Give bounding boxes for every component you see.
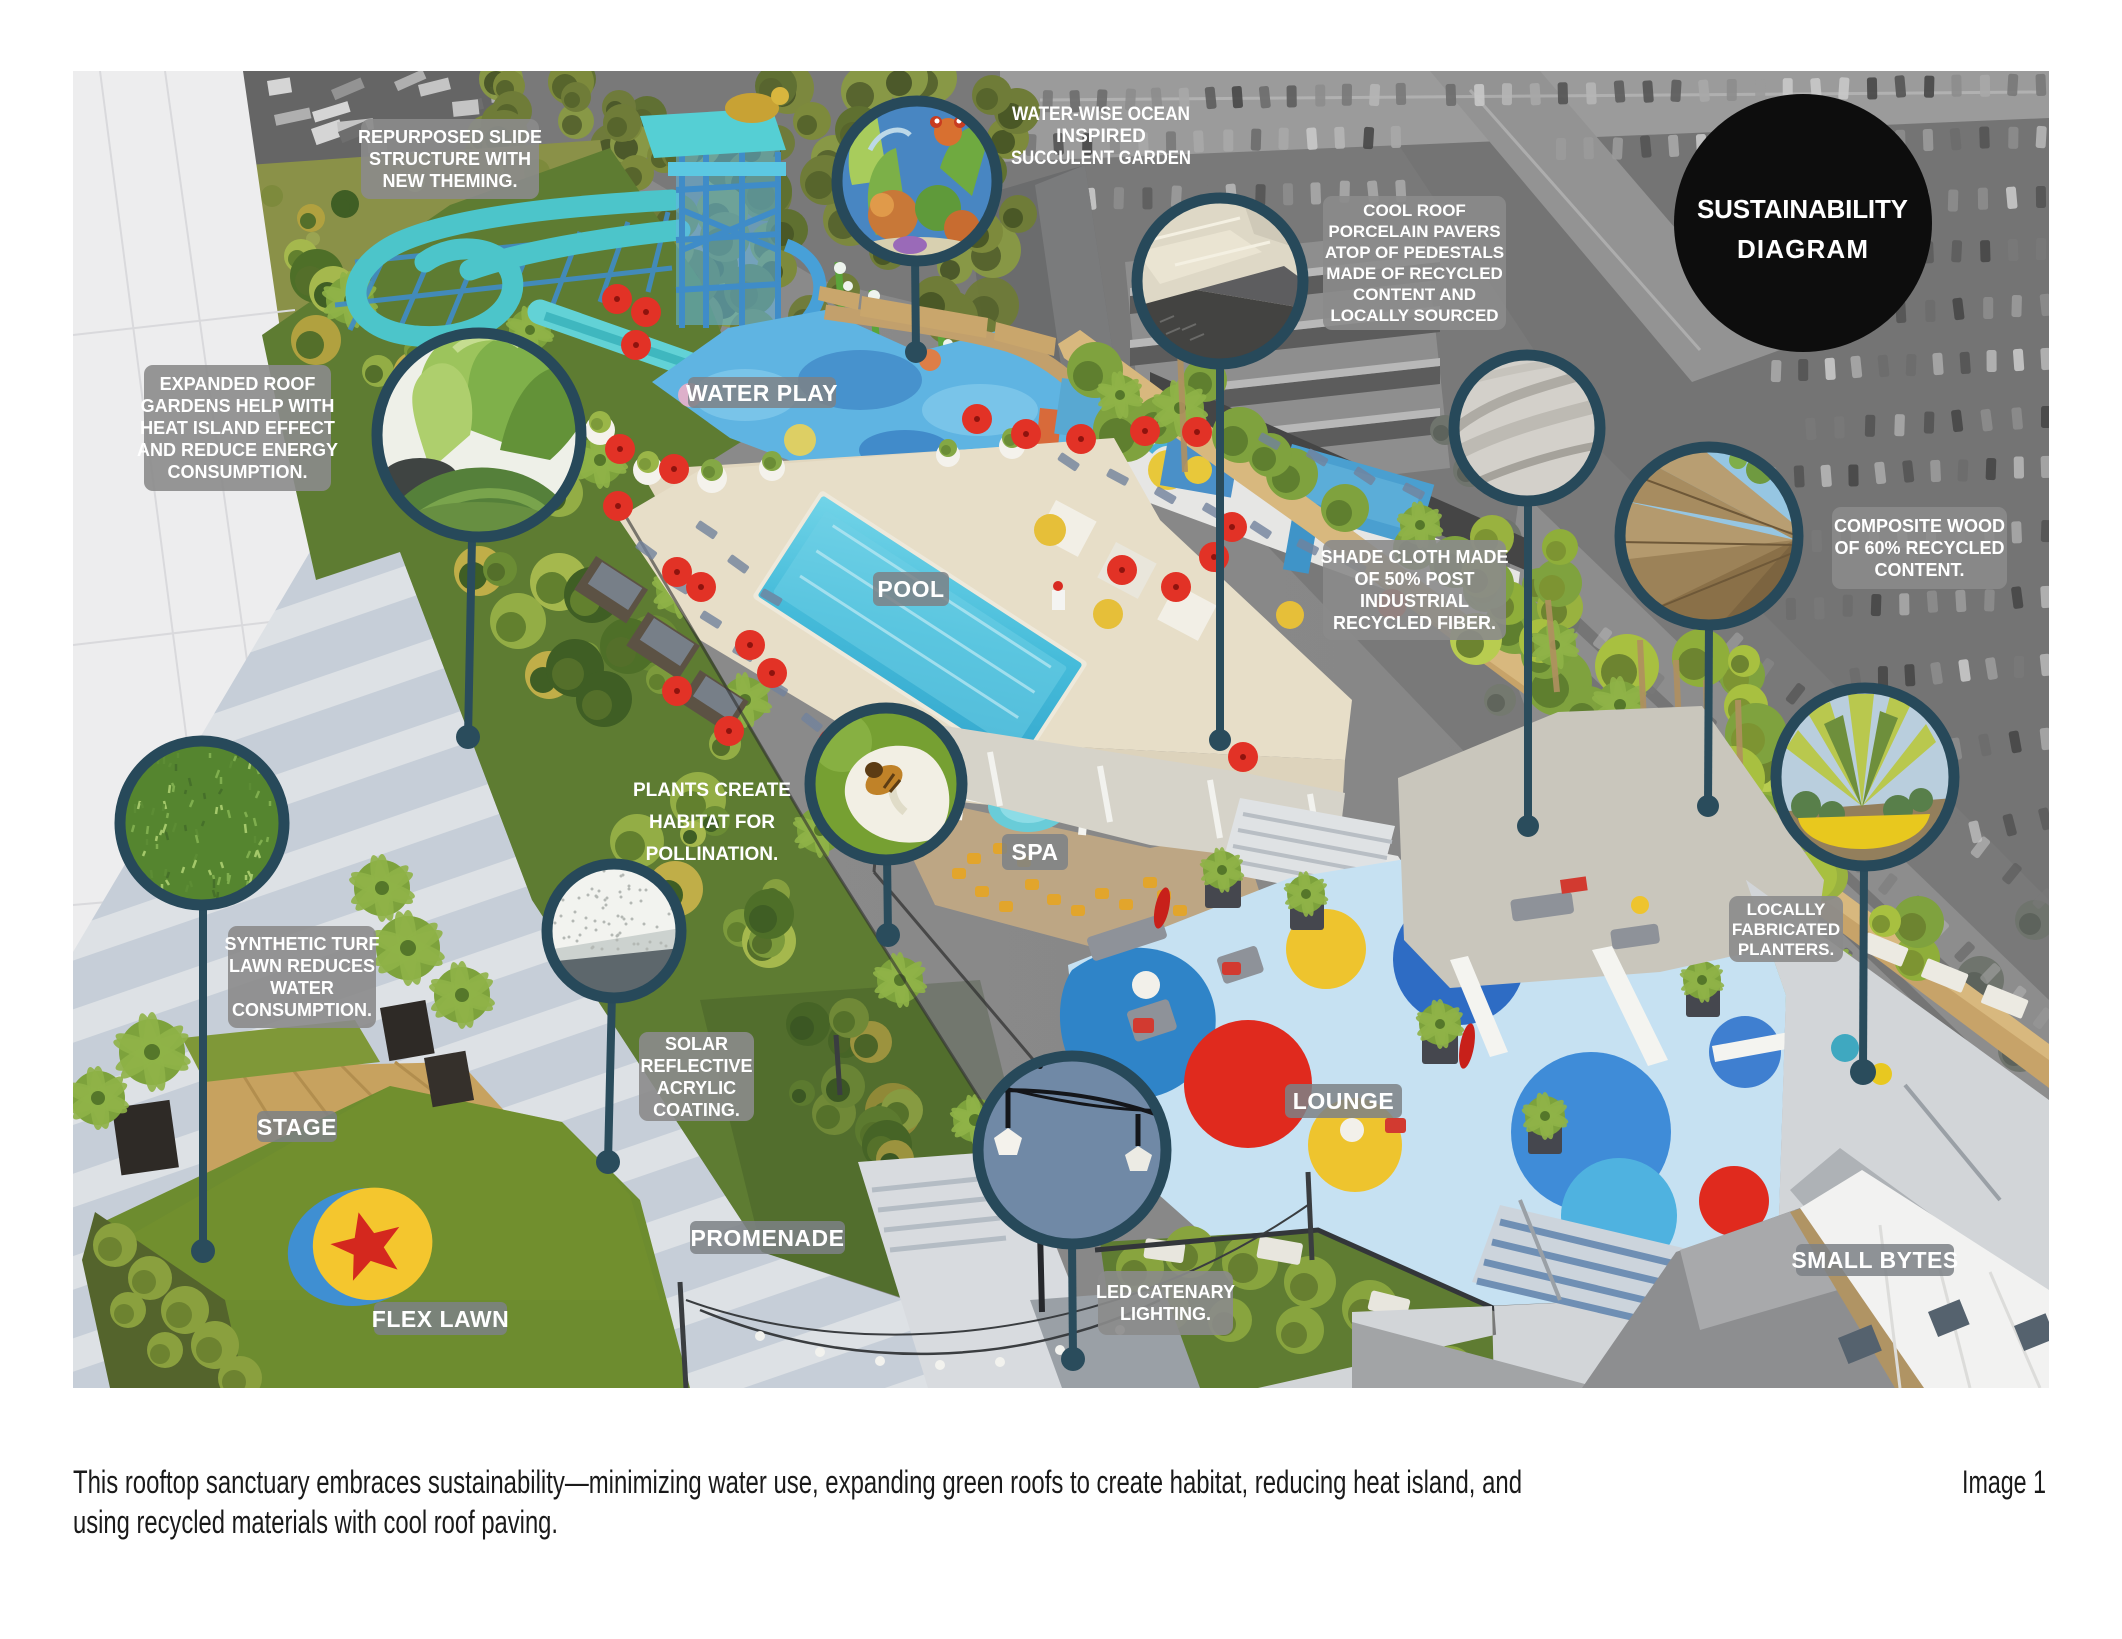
svg-text:LOCALLY SOURCED: LOCALLY SOURCED <box>1330 306 1498 325</box>
svg-text:LIGHTING.: LIGHTING. <box>1120 1304 1211 1324</box>
svg-text:POOL: POOL <box>877 576 944 602</box>
svg-text:This rooftop sanctuary embrace: This rooftop sanctuary embraces sustaina… <box>73 1464 1522 1500</box>
svg-text:SHADE CLOTH MADE: SHADE CLOTH MADE <box>1321 547 1509 567</box>
svg-text:CONTENT.: CONTENT. <box>1875 560 1965 580</box>
svg-text:OF 50% POST: OF 50% POST <box>1354 569 1474 589</box>
svg-text:COMPOSITE WOOD: COMPOSITE WOOD <box>1834 516 2005 536</box>
svg-text:CONTENT AND: CONTENT AND <box>1353 285 1476 304</box>
svg-text:STRUCTURE WITH: STRUCTURE WITH <box>369 149 531 169</box>
svg-text:HABITAT FOR: HABITAT FOR <box>649 812 775 833</box>
svg-text:PLANTS CREATE: PLANTS CREATE <box>633 780 791 801</box>
svg-text:PORCELAIN PAVERS: PORCELAIN PAVERS <box>1328 222 1500 241</box>
svg-text:CONSUMPTION.: CONSUMPTION. <box>167 462 307 482</box>
svg-text:RECYCLED FIBER.: RECYCLED FIBER. <box>1333 613 1496 633</box>
svg-text:HEAT ISLAND EFFECT: HEAT ISLAND EFFECT <box>140 418 335 438</box>
svg-text:NEW THEMING.: NEW THEMING. <box>383 171 518 191</box>
svg-text:MADE OF RECYCLED: MADE OF RECYCLED <box>1326 264 1503 283</box>
svg-text:AND REDUCE ENERGY: AND REDUCE ENERGY <box>137 440 338 460</box>
svg-text:Image 1: Image 1 <box>1962 1464 2046 1500</box>
svg-text:REPURPOSED SLIDE: REPURPOSED SLIDE <box>358 127 542 147</box>
svg-text:GARDENS HELP WITH: GARDENS HELP WITH <box>141 396 335 416</box>
svg-text:ATOP OF PEDESTALS: ATOP OF PEDESTALS <box>1325 243 1504 262</box>
svg-text:OF 60% RECYCLED: OF 60% RECYCLED <box>1834 538 2004 558</box>
svg-text:PROMENADE: PROMENADE <box>690 1225 844 1251</box>
svg-text:WATER PLAY: WATER PLAY <box>686 380 838 406</box>
svg-text:INSPIRED: INSPIRED <box>1056 126 1146 147</box>
svg-text:SYNTHETIC TURF: SYNTHETIC TURF <box>225 934 380 954</box>
svg-text:EXPANDED ROOF: EXPANDED ROOF <box>160 374 316 394</box>
svg-text:REFLECTIVE: REFLECTIVE <box>640 1056 752 1076</box>
svg-text:POLLINATION.: POLLINATION. <box>646 844 779 865</box>
svg-text:WATER: WATER <box>270 978 334 998</box>
svg-text:SUSTAINABILITY: SUSTAINABILITY <box>1697 194 1909 224</box>
svg-text:STAGE: STAGE <box>257 1114 337 1140</box>
svg-text:WATER-WISE OCEAN: WATER-WISE OCEAN <box>1012 104 1190 125</box>
svg-text:LAWN REDUCES: LAWN REDUCES <box>229 956 375 976</box>
svg-text:LOUNGE: LOUNGE <box>1293 1088 1394 1114</box>
svg-text:SPA: SPA <box>1011 839 1058 865</box>
svg-text:ACRYLIC: ACRYLIC <box>657 1078 736 1098</box>
svg-text:SMALL BYTES: SMALL BYTES <box>1791 1247 1958 1273</box>
svg-text:CONSUMPTION.: CONSUMPTION. <box>232 1000 372 1020</box>
svg-text:COOL ROOF: COOL ROOF <box>1363 201 1466 220</box>
svg-text:INDUSTRIAL: INDUSTRIAL <box>1360 591 1469 611</box>
svg-text:PLANTERS.: PLANTERS. <box>1738 940 1834 959</box>
svg-text:FABRICATED: FABRICATED <box>1732 920 1840 939</box>
svg-text:SUCCULENT GARDEN: SUCCULENT GARDEN <box>1011 148 1191 169</box>
svg-text:COATING.: COATING. <box>653 1100 740 1120</box>
svg-text:LED CATENARY: LED CATENARY <box>1096 1282 1235 1302</box>
svg-text:SOLAR: SOLAR <box>665 1034 728 1054</box>
svg-text:using recycled materials with: using recycled materials with cool roof … <box>73 1504 558 1540</box>
svg-text:DIAGRAM: DIAGRAM <box>1737 234 1869 264</box>
svg-text:FLEX LAWN: FLEX LAWN <box>372 1306 509 1332</box>
svg-text:LOCALLY: LOCALLY <box>1747 900 1826 919</box>
